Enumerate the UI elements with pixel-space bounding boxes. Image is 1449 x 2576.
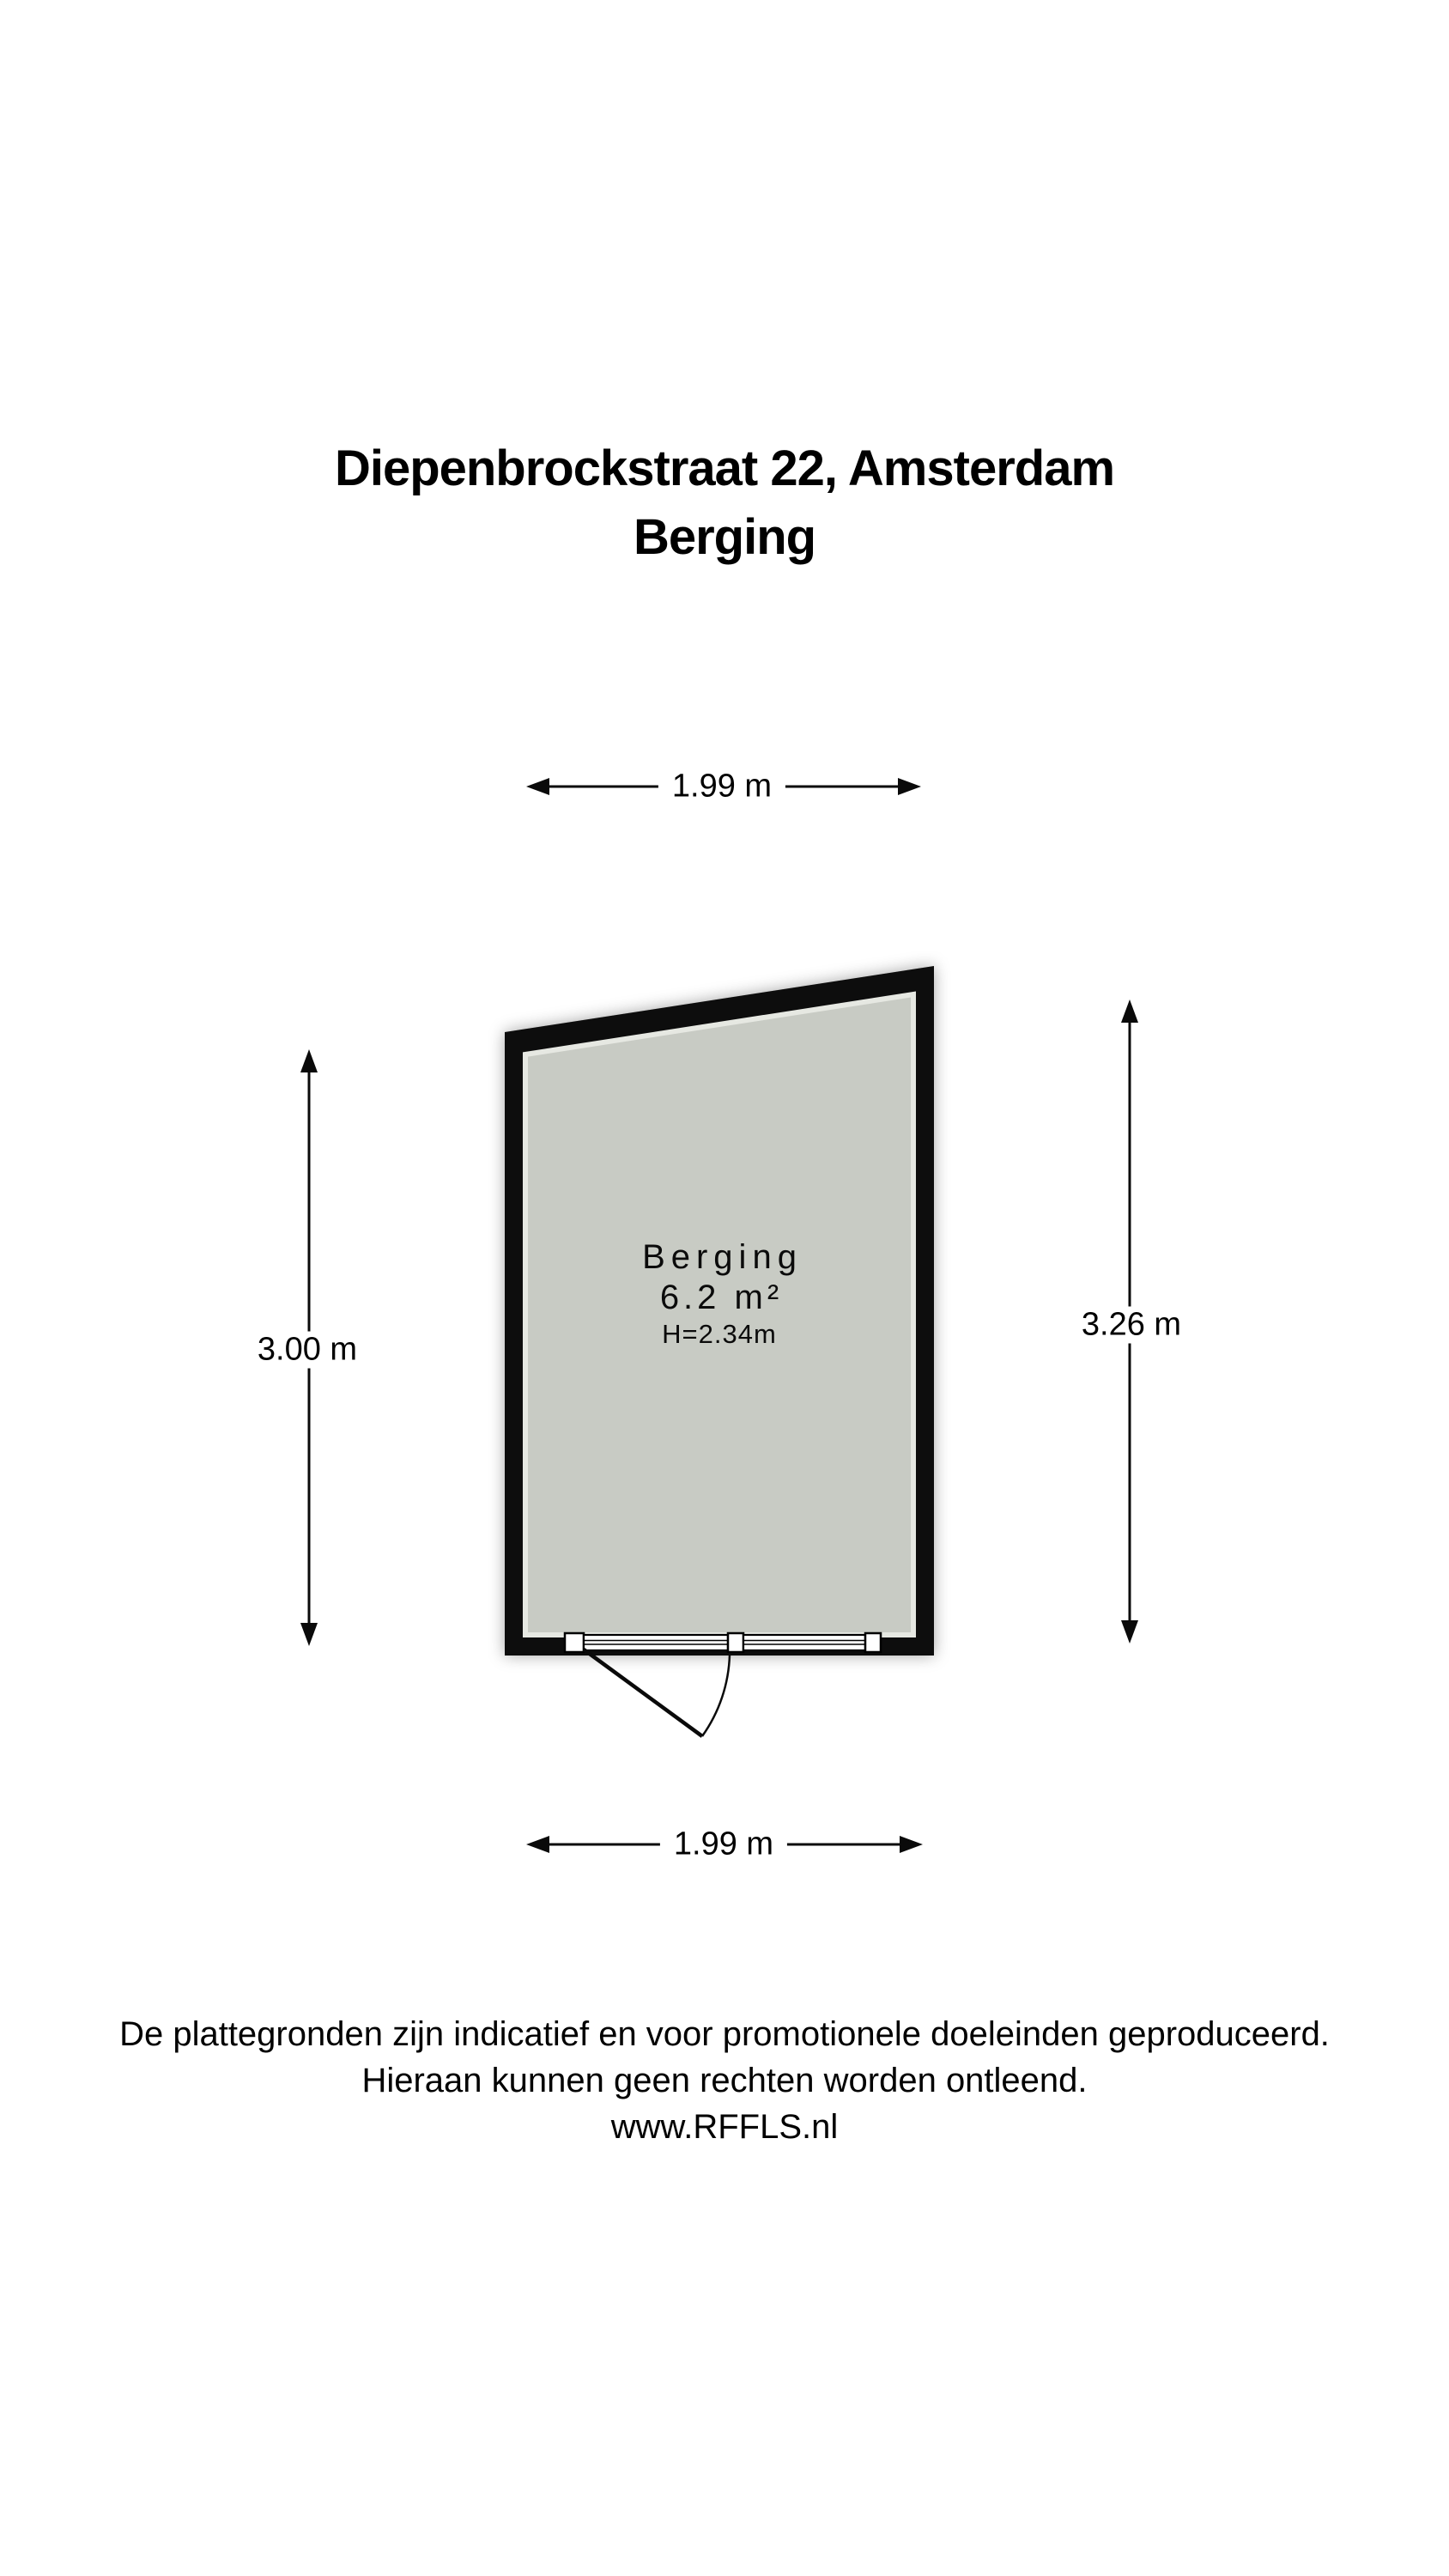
room-ceiling-height: H=2.34m bbox=[636, 1317, 803, 1352]
dim-label-bottom: 1.99 m bbox=[660, 1826, 787, 1863]
footer-disclaimer: De plattegronden zijn indicatief en voor… bbox=[0, 2011, 1449, 2150]
floorplan-page: Diepenbrockstraat 22, Amsterdam Berging bbox=[0, 0, 1449, 2576]
door-jamb-left bbox=[565, 1633, 584, 1652]
footer-line-2: Hieraan kunnen geen rechten worden ontle… bbox=[0, 2057, 1449, 2104]
door-swing-arc bbox=[702, 1655, 730, 1736]
bottom-wall-openings bbox=[565, 1633, 881, 1652]
door-jamb-center bbox=[728, 1633, 743, 1652]
door-panel bbox=[584, 1635, 728, 1650]
window-panel bbox=[743, 1635, 865, 1650]
dim-label-right: 3.26 m bbox=[1068, 1307, 1195, 1344]
door-jamb-right bbox=[865, 1633, 881, 1652]
footer-website: www.RFFLS.nl bbox=[0, 2104, 1449, 2150]
dim-label-left: 3.00 m bbox=[244, 1332, 371, 1369]
dim-label-top: 1.99 m bbox=[658, 769, 785, 805]
room-name: Berging bbox=[636, 1236, 803, 1278]
room-area: 6.2 m² bbox=[636, 1278, 803, 1317]
room-label: Berging 6.2 m² H=2.34m bbox=[636, 1236, 803, 1352]
door-leaf bbox=[584, 1649, 702, 1736]
footer-line-1: De plattegronden zijn indicatief en voor… bbox=[0, 2011, 1449, 2057]
